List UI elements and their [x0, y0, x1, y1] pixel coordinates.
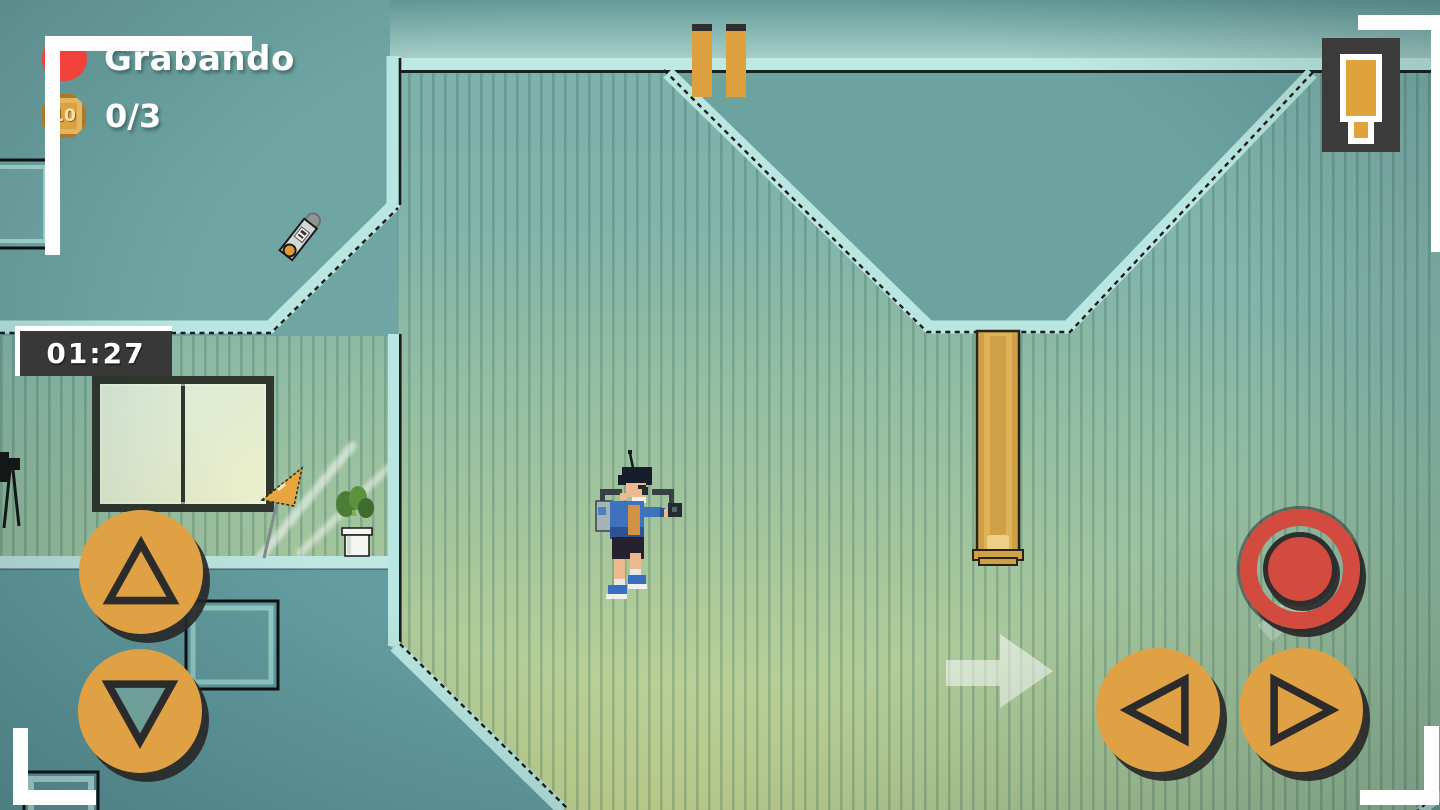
game-screen: Grabando 10 0/3 01:27 [0, 0, 1440, 810]
viewfinder-bracket-top-left [45, 36, 252, 255]
timer-value: 01:27 [46, 337, 145, 370]
triangle-left-icon [1116, 668, 1200, 752]
hanging-pole [973, 331, 1023, 565]
pause-button[interactable] [692, 24, 746, 97]
crouch-button[interactable] [78, 649, 202, 773]
jump-button[interactable] [79, 510, 203, 634]
triangle-right-icon [1259, 668, 1343, 752]
move-left-button[interactable] [1096, 648, 1220, 772]
pause-bar-icon [692, 24, 712, 97]
move-right-button[interactable] [1239, 648, 1363, 772]
window [92, 376, 274, 512]
pause-bar-icon [726, 24, 746, 97]
ceiling-edge-highlight [390, 58, 1440, 71]
triangle-up-icon [99, 530, 183, 614]
ceiling-line [390, 70, 1440, 73]
viewfinder-bracket-bottom-left [13, 728, 96, 805]
timer-panel: 01:27 [15, 326, 172, 376]
viewfinder-bracket-top-right [1358, 15, 1440, 252]
sky-band [390, 0, 1440, 58]
viewfinder-bracket-bottom-right [1360, 726, 1439, 805]
record-action-dot-icon [1263, 532, 1337, 606]
triangle-down-icon [98, 669, 182, 753]
record-action-button[interactable] [1240, 509, 1360, 629]
